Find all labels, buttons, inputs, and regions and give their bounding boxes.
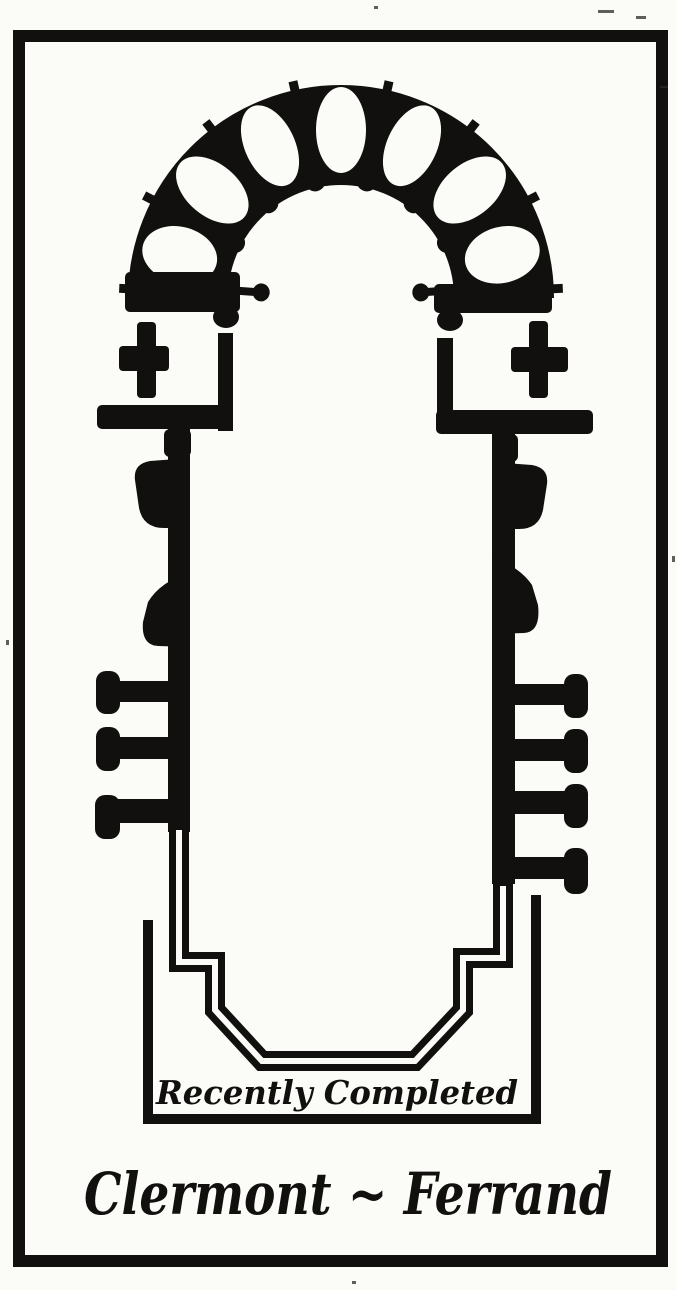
cathedral-plan-figure: Recently Completed Clermont ~ Ferrand [0, 0, 677, 1290]
base-knob-right [437, 309, 463, 331]
chevet-base-block-right [434, 284, 552, 313]
buttress-stem [112, 737, 170, 759]
transept-arm-left [97, 405, 228, 429]
nave-walls [135, 427, 547, 884]
speck [6, 640, 9, 645]
speck [374, 6, 378, 9]
buttress-cap [564, 674, 588, 718]
buttress-cap [564, 848, 588, 894]
base-knob-left [213, 306, 239, 328]
chevet-base-block-left [125, 272, 240, 312]
buttress-cap [95, 795, 120, 839]
buttress-stem [513, 739, 570, 761]
figure-caption: Clermont ~ Ferrand [84, 1160, 612, 1228]
buttresses-right [513, 674, 588, 894]
wall-pier-right-lower [492, 557, 538, 634]
speck [636, 16, 646, 19]
buttress-cap [96, 727, 120, 771]
buttress-stem [112, 681, 170, 702]
buttress-stem [513, 684, 570, 705]
wall-pier-right-upper [492, 462, 547, 529]
buttresses-left [95, 671, 170, 839]
wall-pier-left-upper [135, 458, 190, 528]
speck [598, 10, 614, 13]
radiating-chapels [136, 87, 547, 292]
wall-pier-left-lower [143, 572, 190, 647]
speck [660, 86, 668, 88]
choir-walls [218, 333, 453, 431]
cross-left-icon [119, 322, 169, 398]
speck [352, 1281, 356, 1284]
speck [672, 556, 675, 562]
annotation-recently-completed: Recently Completed [155, 1073, 518, 1112]
transept-crosses [119, 321, 568, 398]
apse-chevet [119, 80, 563, 331]
buttress-stem [513, 857, 570, 879]
buttress-cap [564, 784, 588, 828]
cross-right-icon [511, 321, 568, 398]
transept-arm-right [436, 410, 593, 434]
buttress-cap [564, 729, 588, 773]
engraving-page: Recently Completed Clermont ~ Ferrand [0, 0, 677, 1290]
buttress-stem [513, 791, 570, 814]
buttress-cap [96, 671, 120, 714]
radiating-chapel [316, 87, 366, 173]
